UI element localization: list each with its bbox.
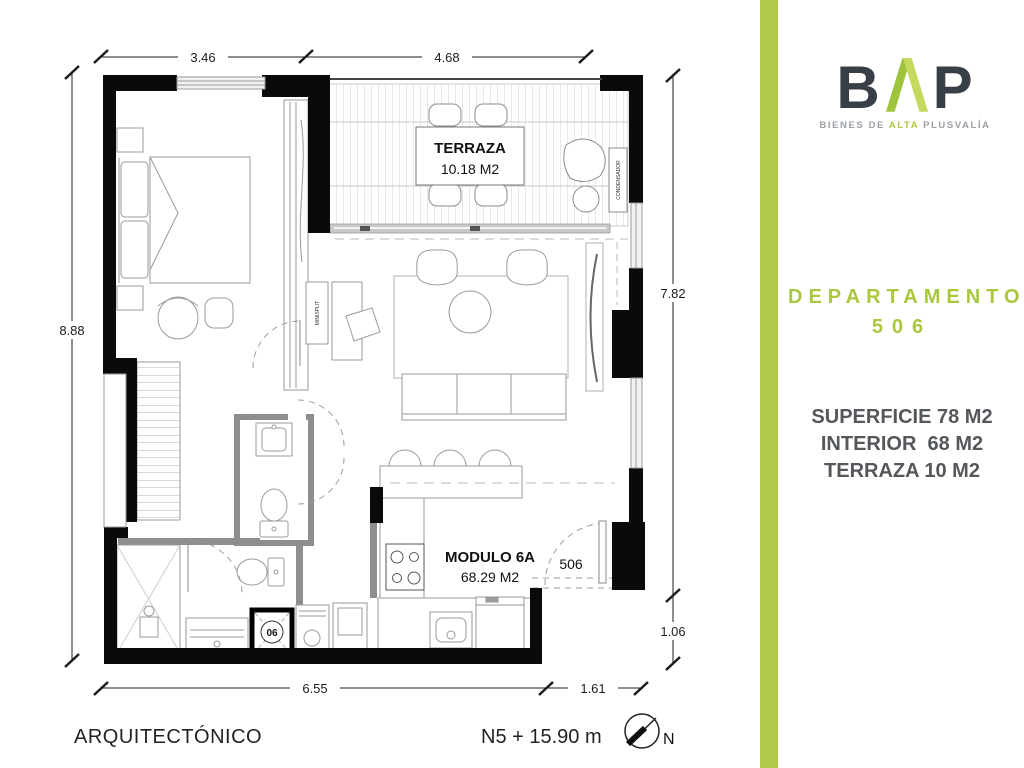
logo-letter-p: P: [933, 63, 974, 113]
tagline-post: PLUSVALÍA: [919, 120, 991, 131]
stair-closet: [137, 362, 180, 520]
minisplit-label: MINISPLIT: [315, 301, 321, 325]
tagline-accent: ALTA: [889, 120, 919, 131]
terraza-label: TERRAZA: [434, 140, 506, 157]
logo-caret-icon: [886, 58, 928, 112]
accent-bar: [760, 0, 778, 768]
logo-letter-b: B: [836, 63, 880, 113]
sheet-title: ARQUITECTÓNICO: [74, 726, 262, 749]
dim-left: 8.88: [59, 323, 84, 338]
page: MINISPLIT TERRAZA 10.18 M2 CONDENSADOR: [0, 0, 1024, 768]
brand-logo: B P BIENES DE ALTA PLUSVALÍA: [800, 58, 1010, 131]
shaft-label: 06: [266, 628, 278, 639]
bedroom-furniture: [117, 128, 250, 339]
north-label: N: [663, 731, 675, 748]
unit-title-text: DEPARTAMENTO: [788, 286, 1016, 309]
tagline-pre: BIENES DE: [819, 120, 889, 131]
module-label: MODULO 6A: [445, 549, 535, 566]
unit-title: DEPARTAMENTO 506: [788, 286, 1016, 339]
stat-interior: INTERIOR 68 M2: [788, 431, 1016, 458]
level-label: N5 + 15.90 m: [481, 726, 602, 749]
unit-number-text: 506: [788, 316, 1016, 339]
condenser-label: CONDENSADOR: [616, 160, 622, 200]
stat-superficie: SUPERFICIE 78 M2: [788, 404, 1016, 431]
module-area-label: 68.29 M2: [461, 569, 520, 585]
terraza-area-label: 10.18 M2: [441, 161, 500, 177]
stat-terraza: TERRAZA 10 M2: [788, 458, 1016, 485]
dim-bottom-right: 1.61: [580, 681, 605, 696]
north-arrow-icon: [625, 714, 659, 748]
unit-number-label: 506: [559, 556, 583, 572]
unit-stats: SUPERFICIE 78 M2 INTERIOR 68 M2 TERRAZA …: [788, 404, 1016, 485]
brand-tagline: BIENES DE ALTA PLUSVALÍA: [800, 120, 1010, 131]
sliding-door: [330, 224, 610, 233]
dim-right-lower: 1.06: [660, 624, 685, 639]
dim-top-right: 4.68: [434, 50, 459, 65]
floor-plan: MINISPLIT TERRAZA 10.18 M2 CONDENSADOR: [0, 0, 760, 768]
dim-bottom-left: 6.55: [302, 681, 327, 696]
powder-room: [237, 410, 311, 543]
living-furniture: [332, 243, 603, 420]
laundry: [296, 603, 367, 653]
dim-top-left: 3.46: [190, 50, 215, 65]
dim-right-upper: 7.82: [660, 286, 685, 301]
